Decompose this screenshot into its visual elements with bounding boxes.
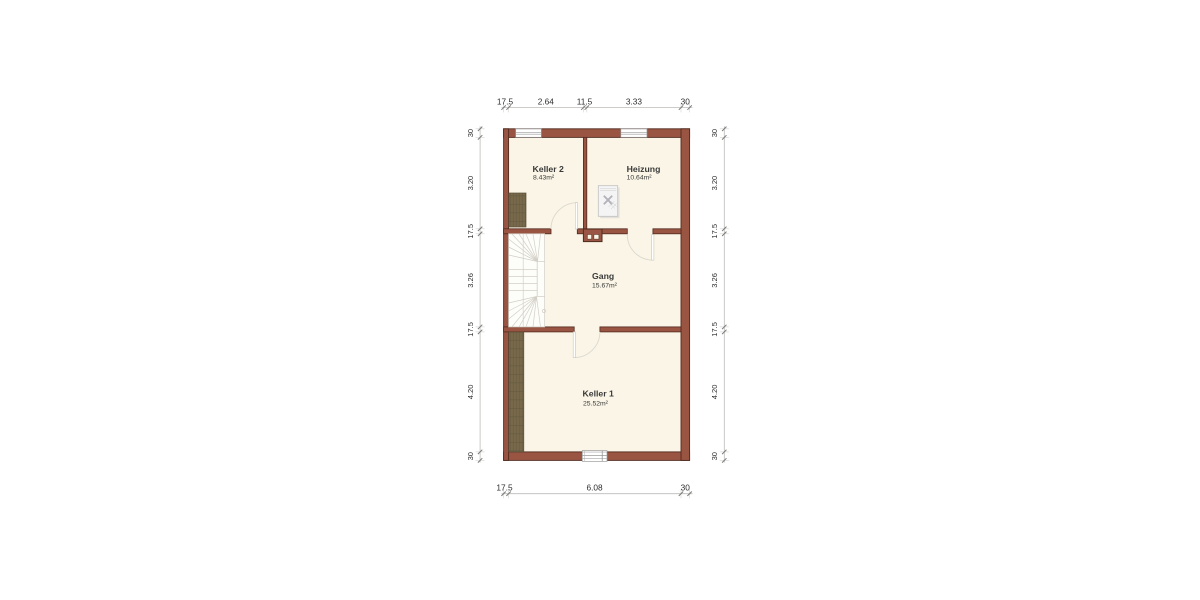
svg-text:30: 30 (681, 483, 691, 493)
svg-text:11.5: 11.5 (577, 97, 593, 107)
svg-text:Heizung: Heizung (627, 164, 661, 174)
svg-text:6.08: 6.08 (587, 483, 604, 493)
svg-text:17.5: 17.5 (710, 322, 719, 337)
svg-text:10.64m²: 10.64m² (627, 175, 653, 182)
svg-text:3.26: 3.26 (710, 273, 719, 288)
svg-text:3.26: 3.26 (466, 273, 475, 288)
svg-text:30: 30 (466, 129, 475, 137)
svg-text:Keller 1: Keller 1 (583, 389, 615, 399)
svg-text:30: 30 (710, 452, 719, 460)
svg-text:4.20: 4.20 (710, 385, 719, 400)
svg-text:15.67m²: 15.67m² (592, 283, 618, 290)
svg-text:Gang: Gang (592, 271, 614, 281)
svg-text:30: 30 (466, 452, 475, 460)
svg-text:8.43m²: 8.43m² (533, 175, 555, 182)
svg-text:Keller 2: Keller 2 (533, 164, 565, 174)
svg-text:3.33: 3.33 (626, 97, 643, 107)
svg-text:2.64: 2.64 (538, 97, 555, 107)
svg-text:30: 30 (710, 129, 719, 137)
svg-text:4.20: 4.20 (466, 385, 475, 400)
svg-text:30: 30 (681, 97, 691, 107)
svg-text:17.5: 17.5 (496, 483, 513, 493)
svg-text:17.5: 17.5 (466, 322, 475, 337)
svg-text:17.5: 17.5 (497, 97, 514, 107)
svg-text:3.20: 3.20 (466, 176, 475, 191)
svg-text:25.52m²: 25.52m² (583, 400, 609, 407)
svg-text:17.5: 17.5 (466, 224, 475, 239)
svg-text:3.20: 3.20 (710, 176, 719, 191)
svg-text:17.5: 17.5 (710, 224, 719, 239)
